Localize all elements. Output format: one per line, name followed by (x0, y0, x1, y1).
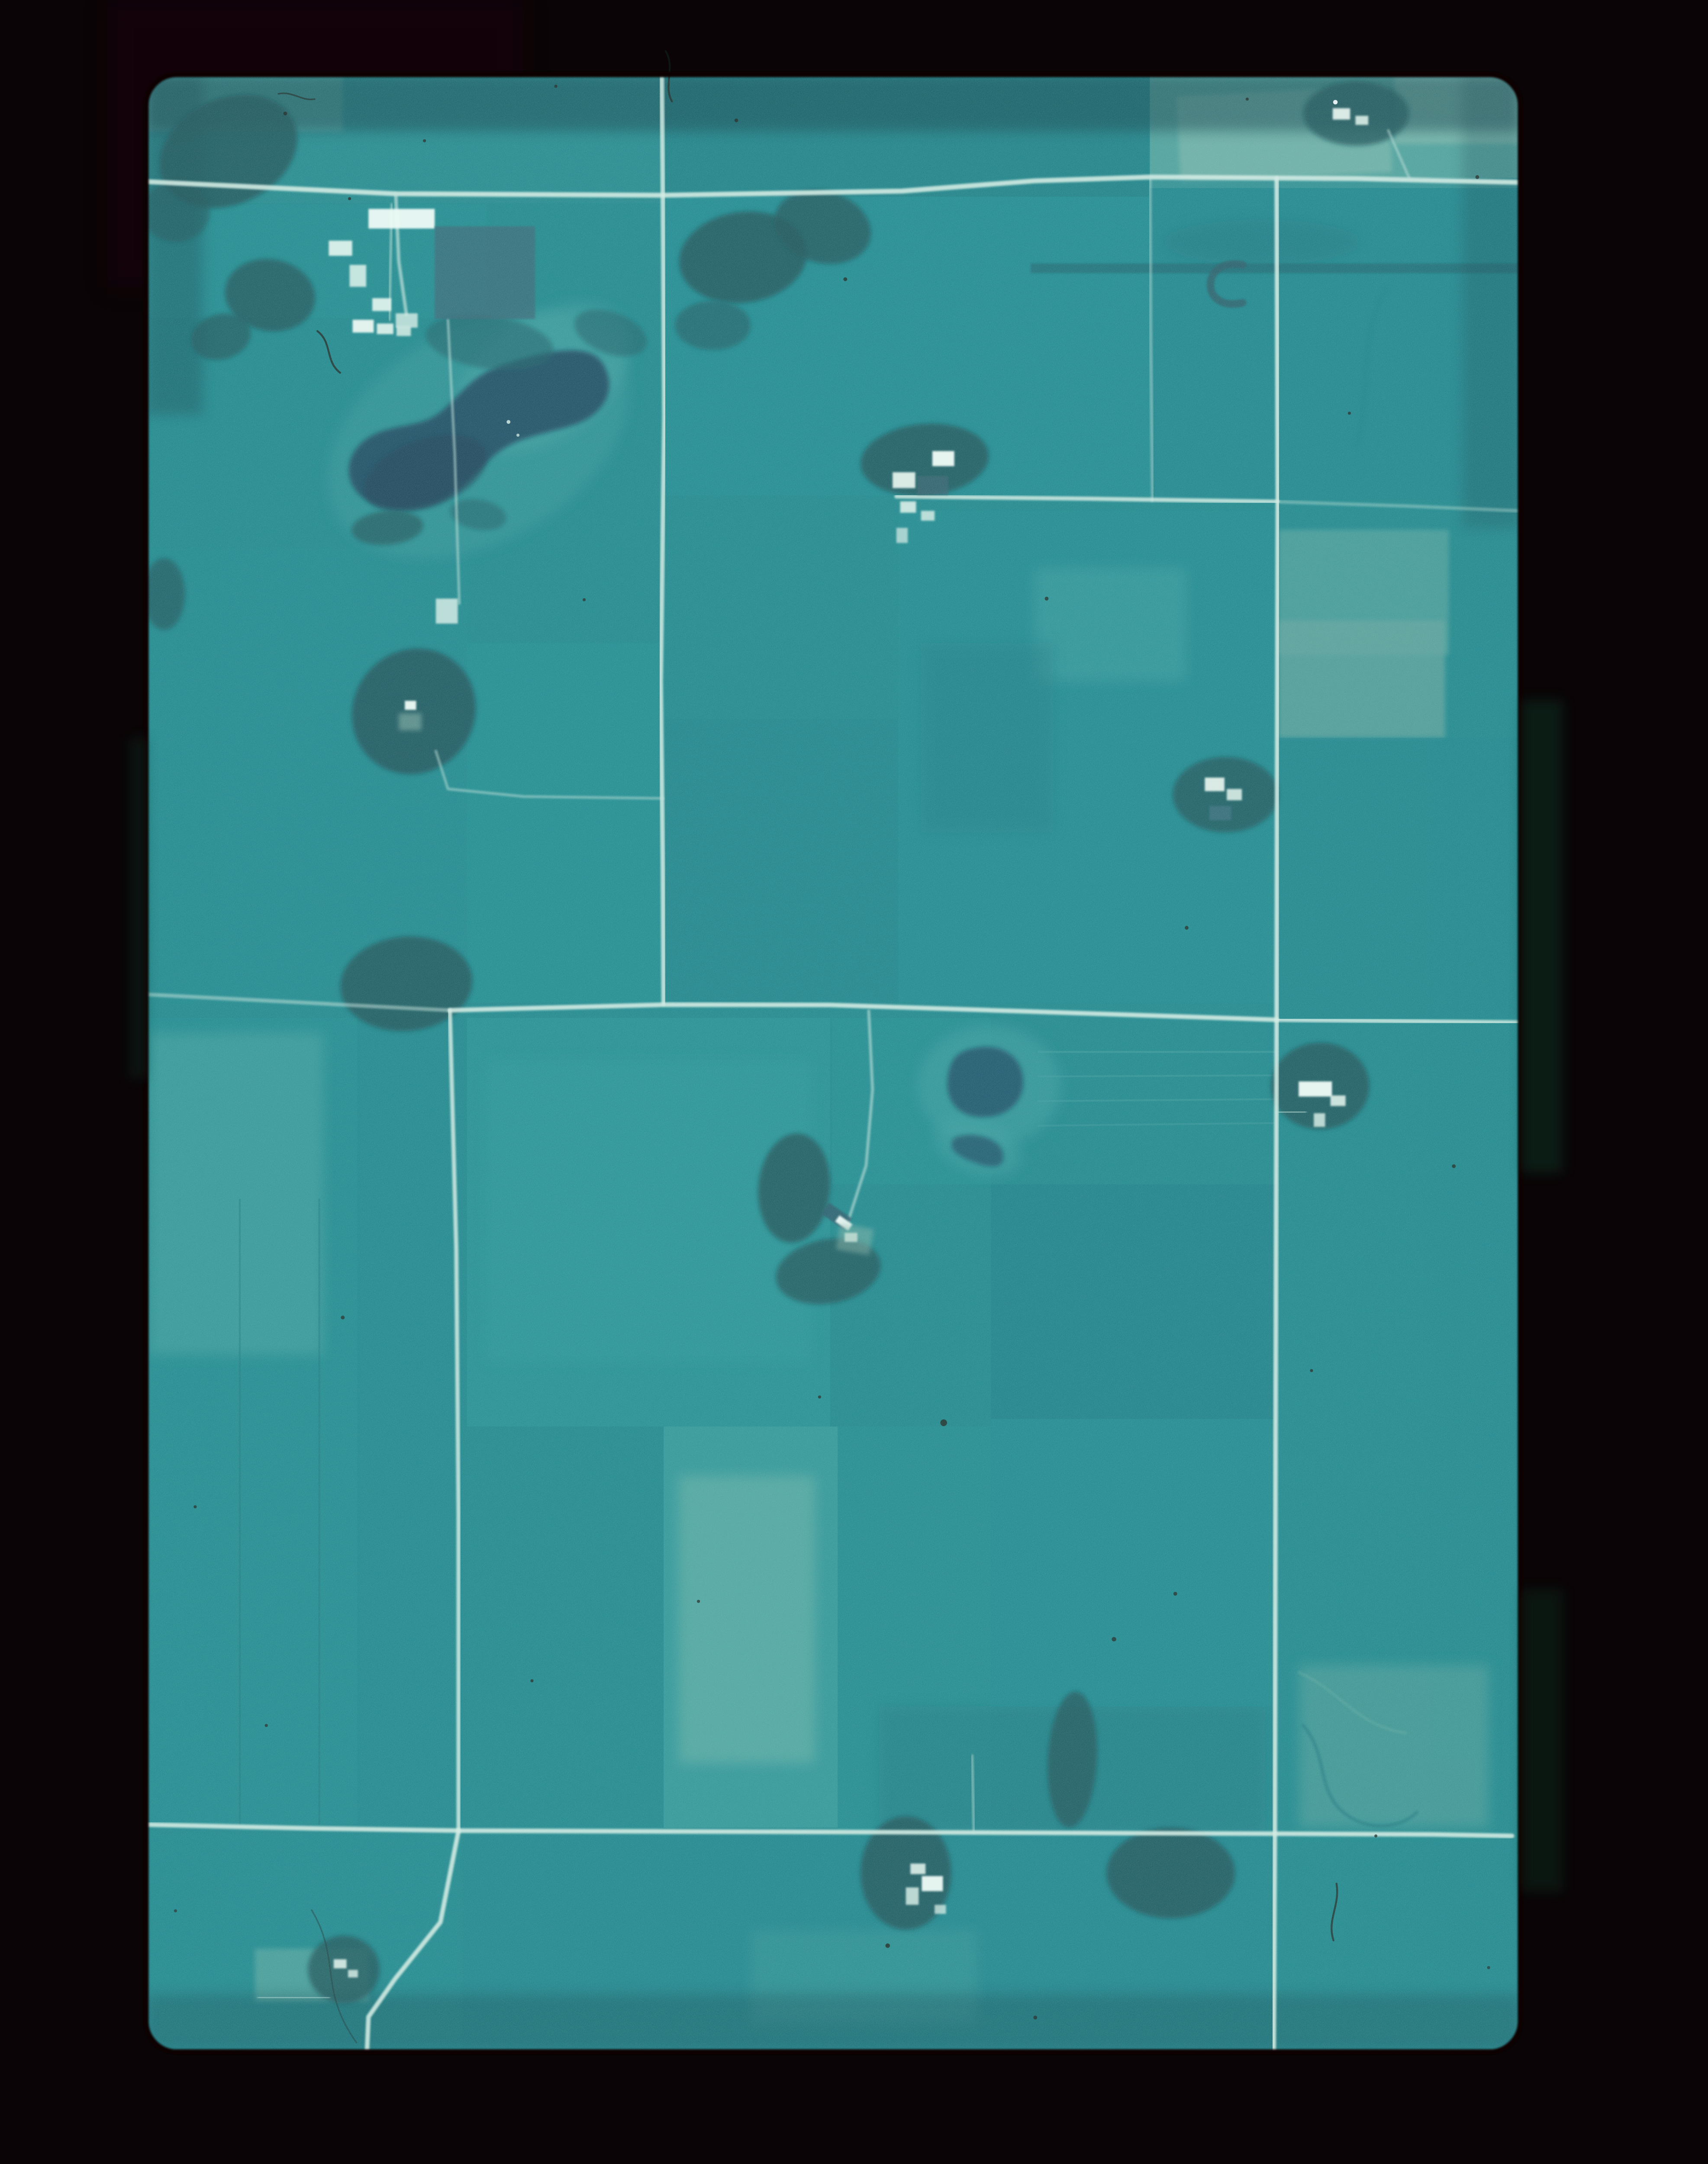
edge-tint-right (1521, 1589, 1563, 1892)
grain-overlay (146, 74, 1520, 2052)
aerial-photo (0, 0, 1708, 2164)
edge-tint-right (1521, 700, 1563, 1173)
scene-layers (107, 0, 1601, 2164)
film-grain (146, 74, 1520, 2052)
slide-mount (0, 0, 1708, 2164)
edge-tint-left (129, 738, 148, 1079)
